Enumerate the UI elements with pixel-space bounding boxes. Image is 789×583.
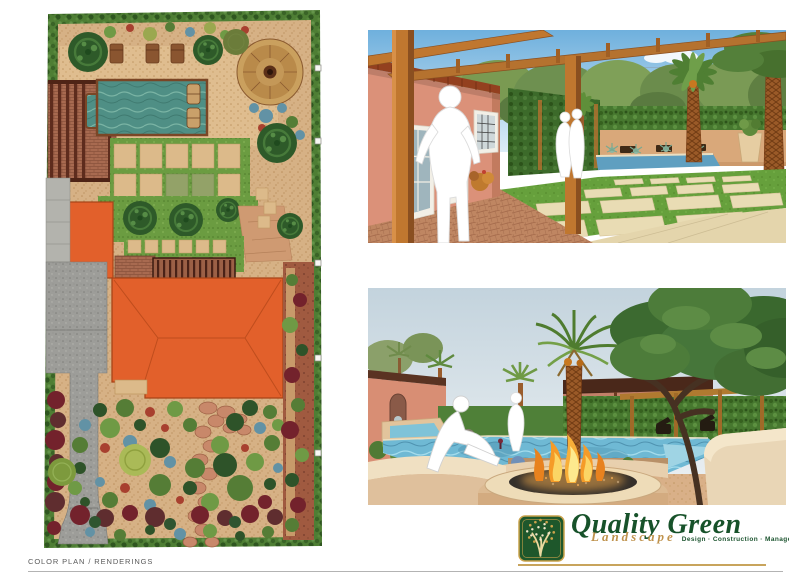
paver-grid — [110, 138, 250, 204]
sheet-title-text: COLOR PLAN / RENDERINGS — [28, 557, 153, 566]
presentation-sheet: COLOR PLAN / RENDERINGS Quality Green — [0, 0, 789, 583]
title-block-rule — [28, 571, 783, 572]
rendering-pergola-patio-image — [368, 30, 786, 243]
swimming-pool-plan — [97, 80, 207, 135]
planter-urn — [738, 133, 762, 162]
planter-wall-right — [704, 428, 786, 505]
logo-division: Landscape — [591, 530, 676, 543]
rendering-bottom-panel — [368, 288, 786, 505]
lounge-chairs — [110, 44, 184, 63]
sheet-title: COLOR PLAN / RENDERINGS — [28, 557, 153, 566]
company-logo: Quality Green Landscape Design · Constru… — [518, 511, 770, 567]
logo-underline — [518, 564, 766, 566]
rendering-pool-firepit-image — [368, 288, 786, 505]
color-plan-panel — [40, 10, 322, 548]
tree-logo-icon — [518, 515, 565, 562]
rendering-top-panel — [368, 30, 786, 243]
logo-tagline: Design · Construction · Management — [682, 537, 789, 544]
color-plan-image — [40, 10, 322, 548]
